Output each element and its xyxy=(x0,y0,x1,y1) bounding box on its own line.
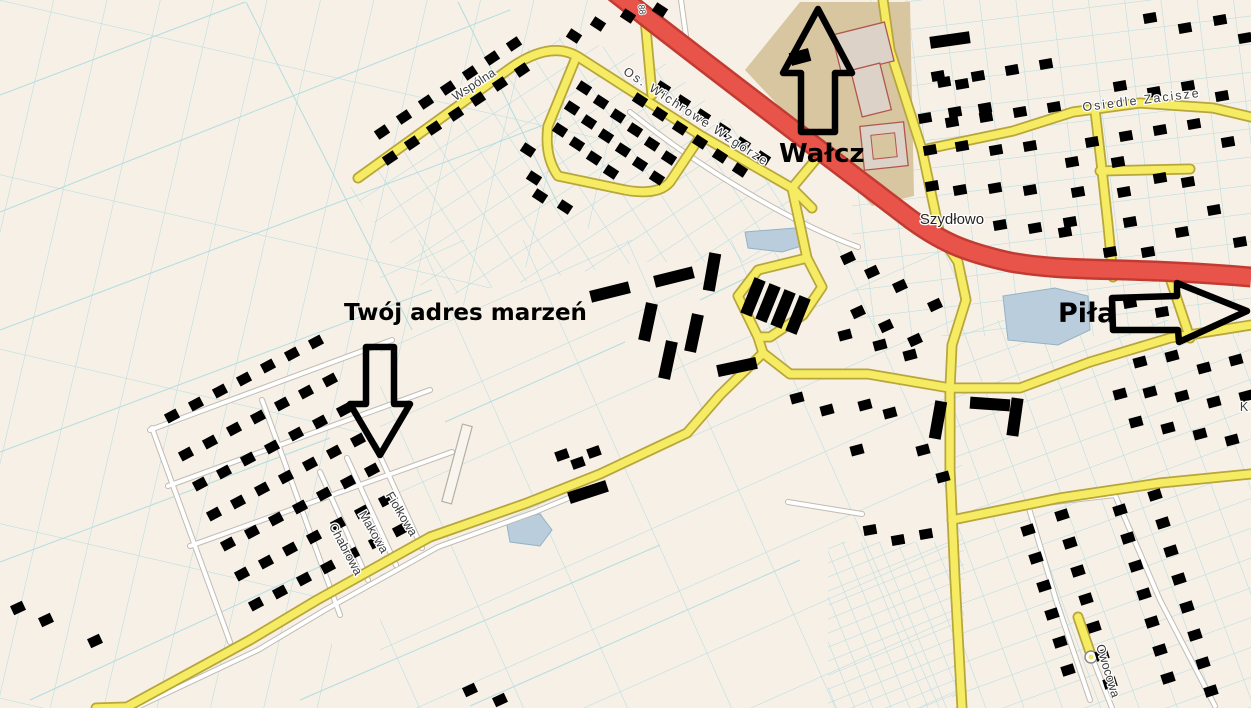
street-label-partial-k: K xyxy=(1240,400,1249,414)
annotation-pila: Piła xyxy=(1058,298,1115,329)
plot-number-label: 88 xyxy=(636,4,648,16)
annotation-walcz: Wałcz xyxy=(779,139,865,169)
fields-layer xyxy=(0,0,1251,708)
map-svg: Wspólna Os. Wichrowe Wzgórze Osiedle Zac… xyxy=(0,0,1251,708)
annotation-dream-address: Twój adres marzeń xyxy=(344,300,587,326)
map-canvas: Wspólna Os. Wichrowe Wzgórze Osiedle Zac… xyxy=(0,0,1251,708)
place-label-szydlowo: Szydłowo xyxy=(920,211,984,228)
